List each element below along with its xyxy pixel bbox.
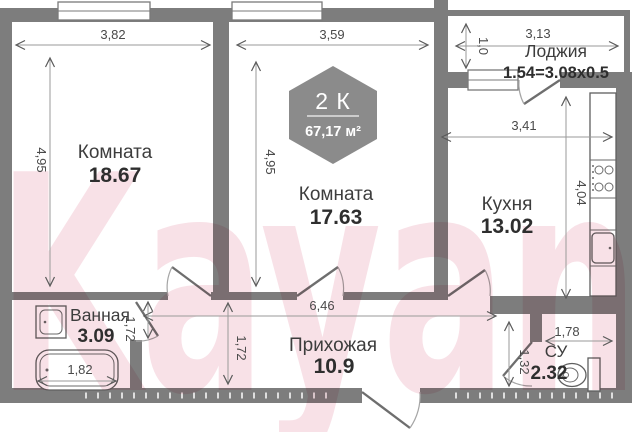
- door-balcony: [519, 80, 560, 104]
- wall-loggia-right: [624, 10, 630, 75]
- window-room2: [232, 2, 322, 20]
- wc-area: 2.32: [531, 363, 568, 384]
- bathroom-area: 3.09: [78, 326, 115, 347]
- room2-name: Комната: [299, 184, 374, 205]
- dim-wc-width-label: 1,78: [554, 324, 579, 339]
- wall-kitchen-top-left: [448, 72, 468, 88]
- bathroom-name: Ванная: [70, 305, 130, 325]
- dim-room2-width: 3,59: [237, 27, 428, 50]
- room1-name: Комната: [78, 142, 153, 163]
- dim-loggia-depth: 1,0: [462, 24, 492, 68]
- loggia-area: 1.54=3.08x0.5: [503, 64, 609, 82]
- kitchen-name: Кухня: [482, 194, 533, 215]
- dim-loggia-width-label: 3,13: [525, 26, 550, 41]
- dim-kitchen-depth-label: 4,04: [574, 180, 589, 205]
- wall-loggia-top: [448, 10, 630, 16]
- dim-room1-width: 3,82: [16, 27, 210, 50]
- wc-name: СУ: [545, 342, 568, 361]
- floorplan-image: Kayan 3,82 3,59 3,13 1,0: [0, 0, 635, 432]
- dim-loggia-depth-label: 1,0: [476, 37, 491, 55]
- dim-room1-depth-label: 4,95: [34, 147, 49, 172]
- floorplan-svg: Kayan 3,82 3,59 3,13 1,0: [0, 0, 635, 432]
- dim-kitchen-width-label: 3,41: [511, 118, 536, 133]
- badge-type-label: 2 К: [315, 88, 351, 114]
- room2-area: 17.63: [310, 206, 363, 229]
- dim-hallway-width-label: 6,46: [309, 298, 334, 313]
- kitchen-area: 13.02: [481, 215, 534, 238]
- hallway-area: 10.9: [314, 355, 355, 378]
- dim-room1-width-label: 3,82: [100, 27, 125, 42]
- dim-bathtub-width-label: 1,82: [67, 362, 92, 377]
- dim-room2-width-label: 3,59: [319, 27, 344, 42]
- window-room1: [58, 2, 150, 20]
- kitchen-label: Кухня 13.02: [481, 194, 534, 238]
- badge-area-label: 67,17 м²: [305, 124, 361, 140]
- hallway-name: Прихожая: [289, 335, 377, 356]
- loggia-name: Лоджия: [525, 41, 587, 61]
- loggia-label: Лоджия 1.54=3.08x0.5: [503, 41, 609, 82]
- dim-room2-depth-label: 4,95: [263, 149, 278, 174]
- room1-area: 18.67: [89, 164, 142, 187]
- dim-hallway-depth-label: 1,72: [234, 335, 249, 360]
